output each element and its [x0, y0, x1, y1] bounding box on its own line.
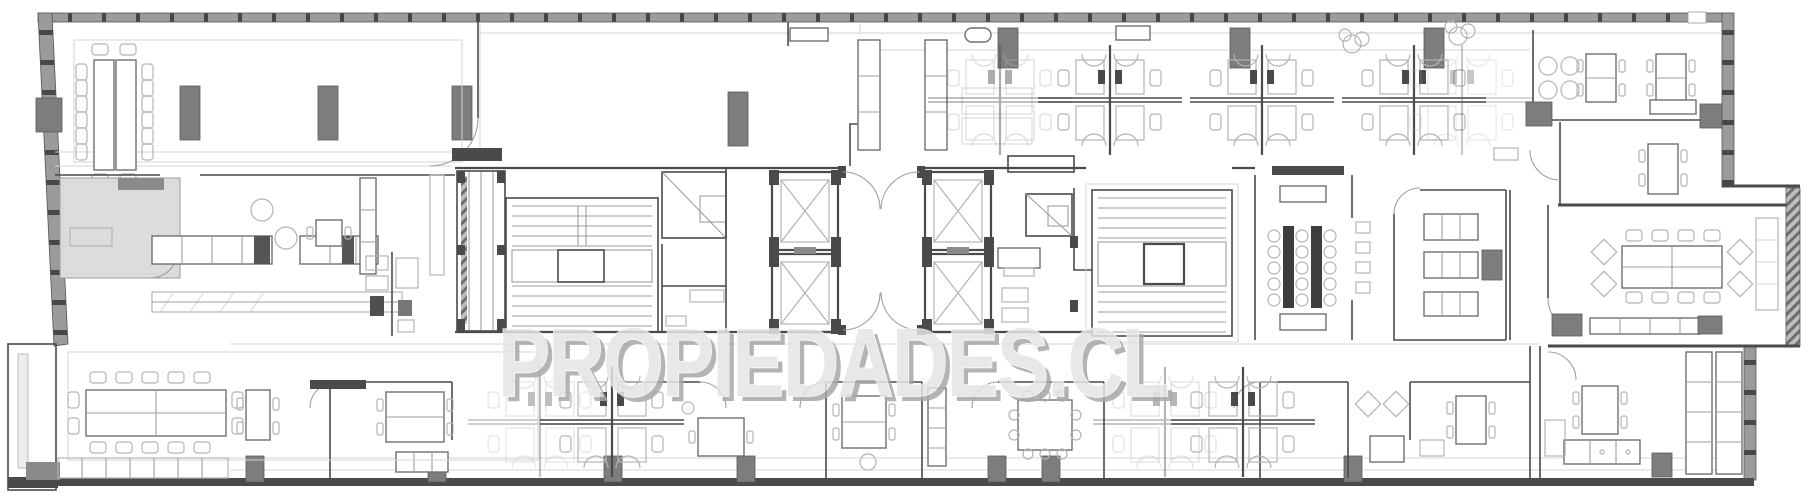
storage-column	[858, 40, 880, 150]
watermark: PROPIEDADES.CL PROPIEDADES.CL	[498, 308, 1173, 422]
high-table	[1283, 226, 1294, 308]
lounge-center	[1394, 188, 1510, 340]
bench	[1356, 222, 1370, 293]
wall-notch	[1688, 12, 1706, 23]
oval-table	[965, 28, 991, 42]
curtain-wall-east	[1722, 13, 1734, 187]
kitchen-service-area	[55, 175, 455, 336]
floor-plan-drawing: PROPIEDADES.CL PROPIEDADES.CL	[0, 0, 1818, 500]
round-table-chairs	[1539, 57, 1579, 99]
workstation-cluster	[1390, 45, 1534, 155]
cafe-table	[316, 220, 342, 246]
conference-room-nw	[74, 22, 502, 185]
media-unit	[1482, 250, 1502, 280]
conference-room-e	[1548, 205, 1800, 346]
door-arc	[1394, 188, 1420, 214]
desk	[1456, 396, 1486, 444]
elevator	[922, 170, 994, 252]
coffee-table	[1370, 436, 1404, 462]
door-arc	[1530, 150, 1560, 180]
window-sill	[18, 354, 28, 468]
offices-ne	[1494, 30, 1722, 205]
conference-room-sw	[58, 352, 538, 478]
workstation-cluster	[928, 45, 1072, 155]
workstation-cluster	[1342, 45, 1486, 155]
open-office-north	[788, 21, 1534, 155]
sofa	[1424, 292, 1478, 316]
double-door-arc	[843, 172, 920, 209]
round-table	[251, 199, 273, 221]
curtain-wall-north	[38, 13, 1726, 22]
table	[698, 418, 744, 456]
core-west	[455, 124, 1255, 335]
high-table	[1311, 226, 1322, 308]
workstation-cluster	[1171, 367, 1315, 477]
storage-column	[925, 40, 947, 150]
service-shaft	[457, 171, 505, 331]
floor-plan-page: PROPIEDADES.CL PROPIEDADES.CL	[0, 0, 1818, 500]
office-se	[1545, 352, 1640, 464]
wc-rooms-east	[998, 156, 1092, 322]
wall-south	[28, 478, 1754, 486]
conference-table	[94, 60, 114, 170]
side-table	[790, 28, 828, 41]
workstation-cluster	[1038, 45, 1182, 155]
focus-room-center	[1255, 166, 1370, 340]
party-wall-east	[1786, 188, 1800, 346]
sofa	[1424, 214, 1478, 240]
stools	[1268, 230, 1336, 306]
workstation-cluster	[1190, 45, 1334, 155]
door-arc	[1548, 352, 1576, 380]
elevator	[769, 170, 841, 252]
wall-pad	[26, 462, 60, 480]
credenza	[1564, 440, 1640, 464]
printer-table	[1116, 26, 1150, 40]
sofa	[1424, 252, 1478, 278]
wall-shelf	[1756, 218, 1778, 310]
desk	[1582, 386, 1618, 434]
table	[246, 390, 270, 440]
table	[1648, 144, 1678, 194]
watermark-text: PROPIEDADES.CL	[498, 308, 1168, 417]
sideboard	[1590, 318, 1700, 334]
wall-se	[1744, 346, 1756, 480]
shelves-se	[1686, 352, 1742, 474]
column	[36, 98, 62, 132]
